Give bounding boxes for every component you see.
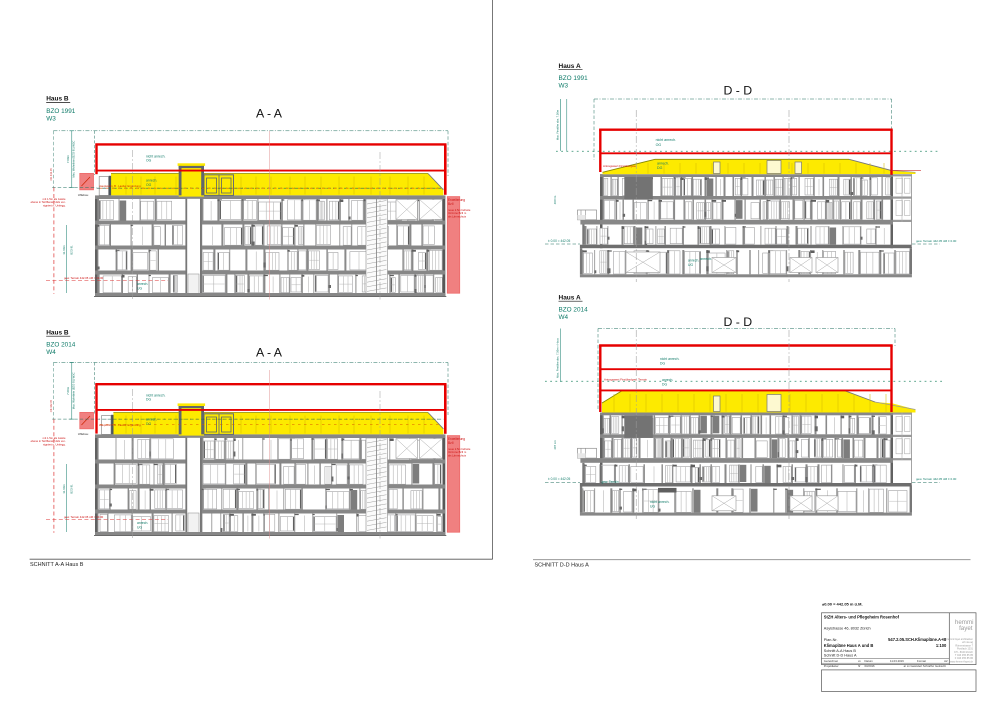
svg-text:OG: OG [656,143,662,147]
svg-text:03/2016: 03/2016 [865,664,876,668]
svg-text:Haus B: Haus B [46,96,69,103]
svg-text:Max. Wohnlinie (BZO 91) W3C: Max. Wohnlinie (BZO 91) W3C [71,372,75,409]
svg-text:± 0.00 = 442.05: ± 0.00 = 442.05 [548,239,570,243]
svg-text:A - A: A - A [256,345,283,359]
svg-text:OK 442.05: OK 442.05 [49,168,53,181]
svg-text:fayet: fayet [959,625,973,632]
svg-text:BZO 2014: BZO 2014 [559,307,589,314]
svg-text:DG: DG [657,166,663,170]
svg-text:DG: DG [146,422,151,426]
svg-text:Max. Firstöhe abs. 7.50m: Max. Firstöhe abs. 7.50m [556,109,560,140]
svg-text:Uffebou: Uffebou [78,193,89,197]
svg-text:OG: OG [146,183,152,187]
svg-text:Datum: Datum [865,659,874,663]
svg-text:BZO 2014: BZO 2014 [46,342,76,349]
svg-text:OK 442.05: OK 442.05 [49,399,53,412]
svg-text:anrech.: anrech. [146,417,157,421]
svg-text:Asylstrasse 46, 8032 Zürich: Asylstrasse 46, 8032 Zürich [824,627,871,631]
svg-text:Format: Format [917,659,926,663]
svg-text:407cm: 407cm [553,195,557,204]
svg-text:Haus B: Haus B [46,329,69,336]
svg-text:BZO 91: BZO 91 [70,484,74,494]
svg-text:Antragswert Firstöhe/gew.: Antragswert Firstöhe/gew. [603,164,637,168]
svg-text:BZO 1991: BZO 1991 [559,75,589,82]
svg-text:7.00m: 7.00m [66,386,70,395]
svg-text:UG: UG [137,287,142,291]
svg-text:W4: W4 [559,314,569,321]
svg-text:ar xx Geändert Schraffur Gel: ar xx Geändert Schraffur Gelöscht [904,664,947,668]
svg-text:Projektleiter: Projektleiter [824,664,839,668]
svg-text:W3: W3 [559,83,569,90]
svg-text:UG: UG [137,526,142,530]
svg-text:anrech.: anrech. [137,282,148,286]
svg-text:nicht anrech.: nicht anrech. [656,138,677,142]
svg-text:gew. Terrain 442.05 üM = ±0.00: gew. Terrain 442.05 üM = ±0.00 [64,276,104,280]
svg-text:anrech.: anrech. [662,378,673,382]
svg-text:UG: UG [688,263,693,267]
svg-text:Antragswert Firstöhe/gew. Terr: Antragswert Firstöhe/gew. Terrain [604,378,647,382]
svg-text:als Lärmschutz: als Lärmschutz [448,214,467,218]
svg-text:D - D: D - D [724,315,753,329]
svg-text:±0.00 = 442.05 m ü.M.: ±0.00 = 442.05 m ü.M. [822,602,863,607]
svg-text:Haus A: Haus A [559,63,581,70]
svg-text:BzII: BzII [448,202,454,206]
svg-text:gew. Terrain 442.05 üM = ±0.00: gew. Terrain 442.05 üM = ±0.00 [64,515,104,519]
svg-text:SCHNITT A-A Haus B: SCHNITT A-A Haus B [30,562,84,568]
svg-text:11.60m: 11.60m [62,484,66,494]
svg-text:Hauptwohn. B · Laubw. Ergenzun: Hauptwohn. B · Laubw. Ergenzung [99,184,141,188]
svg-text:signiert n. Umlegg.: signiert n. Umlegg. [43,442,66,446]
svg-text:StZH Alters- und Pflegeheim Ro: StZH Alters- und Pflegeheim Rosenhof [824,614,900,619]
svg-text:Uffebou: Uffebou [78,432,89,436]
svg-text:Klimapläne Haus A und B: Klimapläne Haus A und B [824,643,874,648]
svg-text:nicht anrech.: nicht anrech. [650,500,669,504]
svg-text:BZO 91: BZO 91 [70,245,74,255]
svg-text:DG: DG [662,383,667,387]
svg-text:hf: hf [858,664,861,668]
svg-text:anrech.: anrech. [657,162,669,166]
svg-text:gew. Terrain 442.05 üM ± 0.00: gew. Terrain 442.05 üM ± 0.00 [916,477,957,481]
svg-text:W3: W3 [46,115,56,122]
svg-text:A - A: A - A [256,106,283,120]
svg-text:BzII: BzII [448,441,454,445]
svg-text:BZO 1991: BZO 1991 [46,108,76,115]
svg-text:W4: W4 [46,349,56,356]
svg-text:A2: A2 [944,659,948,663]
svg-text:anrech.: anrech. [688,259,699,263]
svg-text:407 cm: 407 cm [553,440,557,450]
svg-text:Hauptwohn. B · Laubw. Ergenzun: Hauptwohn. B · Laubw. Ergenzung [99,423,141,427]
svg-text:Haus A: Haus A [559,294,581,301]
svg-text:als Lärmschutz: als Lärmschutz [448,453,467,457]
svg-text:OG: OG [146,159,152,163]
svg-text:SCHNITT D-D Haus A: SCHNITT D-D Haus A [535,562,590,568]
svg-text:547.2.05.SCH.Klimapläne.A+B: 547.2.05.SCH.Klimapläne.A+B [888,637,946,642]
svg-text:nicht anrech.: nicht anrech. [660,357,679,361]
svg-text:Gezeichnet: Gezeichnet [824,659,838,663]
svg-text:anrech.: anrech. [146,178,157,182]
svg-text:Schnitt A-A Haus B: Schnitt A-A Haus B [824,649,857,653]
svg-text:anrech.: anrech. [137,521,148,525]
svg-text:Max. Wohnlinie (BZO 91) W3C: Max. Wohnlinie (BZO 91) W3C [71,141,75,178]
svg-text:DG: DG [660,362,665,366]
svg-text:DG: DG [146,398,151,402]
svg-text:1:100: 1:100 [936,643,947,648]
svg-text:± 0.00 = 442.05: ± 0.00 = 442.05 [548,477,570,481]
svg-text:Plan-Nr.: Plan-Nr. [824,638,838,642]
svg-text:11.03.2016: 11.03.2016 [890,659,904,663]
svg-text:7.00m: 7.00m [66,154,70,163]
svg-text:11.60m: 11.60m [62,245,66,255]
svg-text:gew. Terrain 442.05 üM ± 0.00: gew. Terrain 442.05 üM ± 0.00 [916,239,957,243]
svg-text:Max. Firstöhe abs. 7.50m + Hau: Max. Firstöhe abs. 7.50m + Haus [556,338,560,378]
svg-text:gew. Terrain: gew. Terrain [602,480,619,484]
svg-text:signiert n. Umlegg.: signiert n. Umlegg. [43,203,66,207]
svg-text:anrech.: anrech. [700,257,712,261]
svg-text:UG: UG [650,504,655,508]
svg-text:D - D: D - D [724,83,753,97]
svg-text:www.hemmi-fayet.ch: www.hemmi-fayet.ch [950,660,974,663]
svg-text:Schnitt D-D Haus A: Schnitt D-D Haus A [824,653,857,657]
